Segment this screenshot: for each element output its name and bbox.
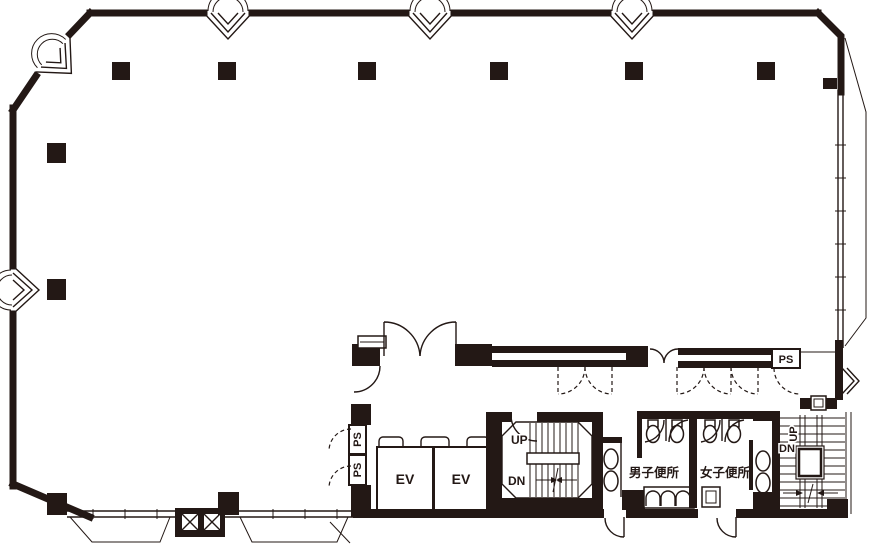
fire-stair-down-label: DN	[779, 443, 795, 455]
column	[47, 143, 66, 163]
partition-wall	[492, 346, 628, 353]
main-stair: UP DN	[486, 412, 603, 512]
basin-fixture	[756, 473, 770, 493]
column	[218, 62, 236, 80]
stair-wall	[486, 412, 502, 512]
urinal-fixture	[604, 471, 618, 491]
top-left-chamfer-wall	[13, 13, 90, 110]
wall	[353, 509, 604, 518]
sink-fixture	[702, 487, 720, 507]
wall-block	[351, 404, 371, 425]
partition-wall	[678, 361, 772, 368]
corridor-north-wall: PS	[352, 322, 836, 368]
elevator-door-jamb	[379, 437, 403, 447]
corridor-end-door	[354, 366, 380, 392]
column	[112, 62, 130, 80]
opening-chevron	[842, 368, 859, 394]
elevator-label: EV	[396, 471, 415, 487]
stair-wall	[486, 412, 512, 422]
column	[47, 279, 66, 300]
mens-toilet-label: 男子便所	[629, 465, 680, 480]
wall	[626, 509, 698, 518]
balcony-outline	[70, 517, 170, 542]
fire-stair: UP DN	[778, 412, 851, 516]
mens-toilet: 男子便所	[622, 411, 694, 510]
partition-wall	[492, 360, 628, 367]
flight-break-line	[808, 484, 813, 503]
dashed-door	[731, 367, 758, 394]
bay-windows	[0, 0, 656, 314]
corridor-swing-door	[650, 349, 678, 363]
womens-toilet-label: 女子便所	[700, 465, 751, 480]
partition	[749, 440, 753, 490]
womens-toilet: 女子便所	[689, 411, 780, 537]
wall-block	[603, 437, 622, 443]
wall	[736, 509, 848, 518]
door-leaf	[384, 322, 420, 356]
exit-door-swing	[717, 517, 736, 537]
core-bottom-wall	[353, 509, 848, 518]
canopy-line	[330, 522, 350, 543]
window-wall-lines	[838, 90, 843, 348]
column	[757, 62, 775, 80]
wash-counter	[644, 487, 694, 508]
door-leaf	[420, 322, 456, 356]
stair-landing	[527, 453, 579, 464]
pipe-shaft-label: PS	[352, 463, 364, 478]
mullion-ticks	[835, 145, 846, 310]
fire-stair-up-label: UP	[788, 426, 800, 441]
exit-door-swing	[605, 517, 624, 537]
elevator-hall-west-wall: PS PS	[329, 366, 380, 517]
floor-plan-page: PS PS PS EV EV	[0, 0, 872, 545]
wall-block	[626, 346, 648, 367]
wall	[835, 340, 843, 400]
duct-fixture	[811, 396, 826, 410]
elevator-label: EV	[452, 471, 471, 487]
balcony-outline	[240, 517, 348, 542]
elevator-bank: EV EV	[377, 437, 489, 510]
stair-wall	[592, 412, 603, 510]
floor-plan-svg: PS PS PS EV EV	[0, 0, 872, 545]
partition-wall	[678, 348, 772, 355]
dashed-door	[774, 368, 800, 394]
bay-window	[0, 266, 39, 314]
urinal-fixture	[604, 449, 618, 469]
bay-window	[406, 0, 454, 39]
equipment-box	[175, 508, 225, 537]
elevator-door-jamb	[421, 437, 449, 447]
bay-window	[608, 0, 656, 39]
shaft-access-doors	[329, 429, 351, 488]
dashed-door	[558, 367, 585, 394]
exterior-walls	[13, 13, 841, 517]
dashed-door	[704, 367, 731, 394]
elevator-door-jamb	[467, 437, 489, 447]
wall-block	[622, 490, 645, 510]
basin-fixture	[756, 451, 770, 471]
bay-window	[204, 0, 252, 39]
dashed-door	[677, 367, 704, 394]
utility-room	[603, 437, 624, 537]
column	[218, 492, 239, 515]
column	[358, 62, 376, 80]
wall-notch	[823, 78, 837, 89]
arrowheads	[551, 477, 562, 483]
dashed-door	[585, 367, 612, 394]
stair-up-label: UP	[511, 433, 528, 447]
outer-wall-lines	[846, 412, 851, 514]
office-entrance-double-door	[384, 322, 456, 356]
corridor-dashed-doors	[558, 367, 800, 394]
column	[625, 62, 643, 80]
stair-down-label: DN	[508, 474, 525, 488]
bottom-curtain-wall	[67, 508, 353, 543]
pipe-shaft-label: PS	[779, 354, 794, 366]
eave-outline	[845, 38, 866, 346]
column	[47, 493, 67, 515]
column	[490, 62, 508, 80]
pipe-shaft-label: PS	[352, 432, 364, 447]
wall-block	[455, 344, 492, 366]
wall	[640, 411, 693, 419]
stair-wall	[537, 412, 600, 422]
service-area	[800, 340, 859, 410]
wall	[697, 411, 753, 419]
dividing-wall	[689, 411, 697, 508]
